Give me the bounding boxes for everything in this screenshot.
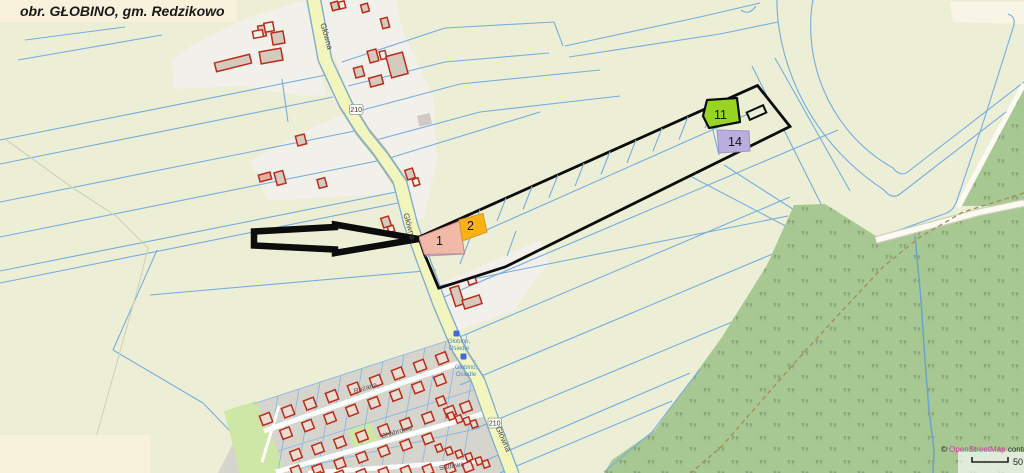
svg-text:Osiedle: Osiedle [456,372,477,378]
svg-text:1: 1 [436,234,443,248]
svg-text:50: 50 [1013,457,1023,467]
svg-text:14: 14 [728,135,742,149]
svg-text:210: 210 [350,107,362,114]
svg-text:Głobino,: Głobino, [455,365,478,371]
svg-text:© OpenStreetMap contrib: © OpenStreetMap contrib [941,445,1024,454]
svg-text:Osiedle: Osiedle [449,346,470,352]
svg-text:obr. GŁOBINO, gm. Redzikowo: obr. GŁOBINO, gm. Redzikowo [20,3,225,19]
svg-text:11: 11 [714,108,727,122]
svg-text:Głobino,: Głobino, [448,339,471,345]
svg-text:2: 2 [467,219,474,233]
